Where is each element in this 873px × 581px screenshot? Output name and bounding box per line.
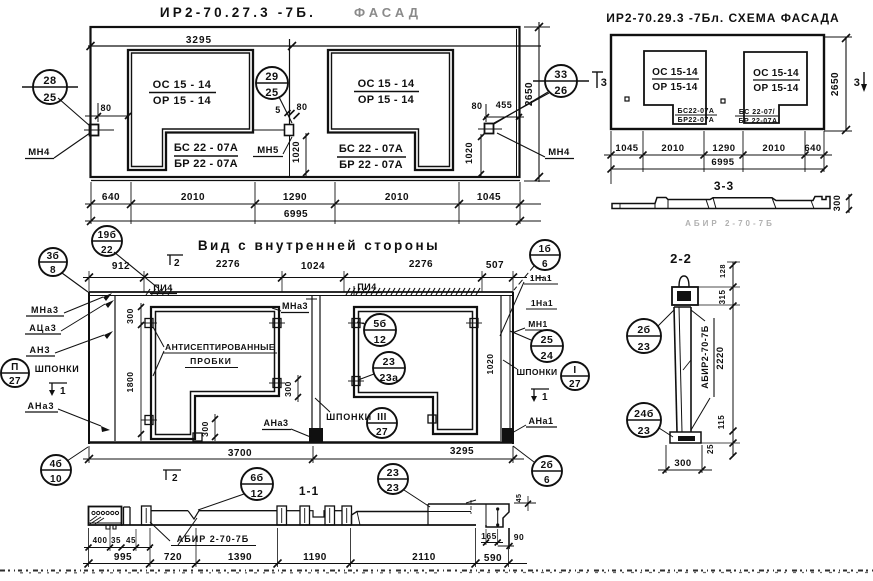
svg-text:400: 400 (93, 536, 108, 545)
svg-text:455: 455 (496, 100, 513, 110)
svg-text:I: I (573, 365, 576, 376)
svg-text:ОР 15-14: ОР 15-14 (753, 83, 798, 94)
svg-text:БС 22-07/: БС 22-07/ (739, 109, 775, 116)
svg-text:300: 300 (283, 381, 293, 397)
svg-text:2110: 2110 (412, 552, 436, 563)
svg-text:АНа3: АНа3 (27, 401, 54, 411)
svg-text:1020: 1020 (485, 354, 495, 375)
svg-text:БР 22-07А: БР 22-07А (738, 118, 777, 125)
svg-text:БС22-07А: БС22-07А (678, 108, 715, 115)
svg-text:2-2: 2-2 (670, 251, 692, 266)
svg-text:3б: 3б (47, 250, 60, 262)
svg-text:1290: 1290 (283, 192, 307, 203)
svg-text:ФАСАД: ФАСАД (354, 5, 422, 20)
svg-text:720: 720 (164, 552, 182, 563)
svg-text:27: 27 (569, 379, 581, 390)
svg-text:2010: 2010 (661, 143, 684, 154)
svg-text:590: 590 (484, 553, 502, 564)
svg-text:315: 315 (718, 290, 727, 305)
svg-text:6995: 6995 (711, 157, 734, 168)
svg-text:1045: 1045 (615, 143, 638, 154)
svg-text:Вид с внутренней стороны: Вид с внутренней стороны (198, 238, 440, 253)
svg-text:25: 25 (265, 87, 278, 99)
svg-text:640: 640 (102, 192, 120, 203)
svg-text:1045: 1045 (477, 192, 501, 203)
svg-text:28: 28 (43, 75, 56, 87)
svg-text:БС 22 - 07А: БС 22 - 07А (339, 143, 403, 155)
svg-text:1На1: 1На1 (530, 273, 552, 283)
svg-text:6б: 6б (250, 472, 263, 484)
svg-text:3: 3 (601, 77, 608, 89)
svg-text:45: 45 (126, 536, 136, 545)
svg-text:115: 115 (717, 415, 726, 429)
svg-text:1290: 1290 (712, 143, 735, 154)
svg-text:5б: 5б (373, 318, 386, 330)
svg-text:640: 640 (804, 143, 821, 154)
svg-text:2: 2 (174, 258, 180, 269)
svg-text:1: 1 (542, 392, 548, 403)
svg-text:ИР2-70.27.3 -7Б.: ИР2-70.27.3 -7Б. (160, 5, 316, 20)
svg-text:1б: 1б (539, 243, 552, 255)
svg-text:300: 300 (125, 308, 135, 324)
svg-text:2220: 2220 (715, 346, 726, 369)
svg-text:1На1: 1На1 (531, 298, 553, 308)
svg-text:ОС 15 - 14: ОС 15 - 14 (358, 78, 415, 90)
svg-text:6: 6 (542, 259, 548, 270)
svg-text:2276: 2276 (409, 259, 433, 270)
svg-text:1-1: 1-1 (299, 484, 319, 498)
svg-text:80: 80 (471, 101, 482, 111)
svg-text:507: 507 (486, 260, 504, 271)
svg-text:24: 24 (541, 350, 554, 362)
svg-text:45: 45 (516, 494, 523, 503)
svg-text:1390: 1390 (228, 552, 252, 563)
svg-text:80: 80 (100, 103, 111, 113)
svg-text:МНа3: МНа3 (282, 301, 308, 311)
svg-text:ОС 15 - 14: ОС 15 - 14 (153, 79, 212, 91)
svg-text:10: 10 (50, 474, 62, 485)
svg-text:6: 6 (544, 475, 550, 486)
svg-text:МН1: МН1 (528, 319, 547, 329)
svg-text:АН3: АН3 (29, 345, 50, 355)
svg-text:80: 80 (296, 102, 307, 112)
svg-text:ОР 15 - 14: ОР 15 - 14 (358, 94, 415, 106)
svg-text:25: 25 (43, 92, 56, 104)
svg-text:АБИР 2-70-7Б: АБИР 2-70-7Б (685, 219, 775, 228)
svg-text:24б: 24б (634, 408, 654, 420)
svg-text:22: 22 (101, 245, 113, 256)
svg-text:2010: 2010 (181, 192, 205, 203)
svg-text:ШПОНКИ: ШПОНКИ (35, 364, 80, 374)
svg-text:23: 23 (387, 482, 400, 494)
svg-text:12: 12 (251, 488, 264, 500)
svg-text:III: III (377, 412, 387, 423)
svg-text:БР 22 - 07А: БР 22 - 07А (174, 158, 238, 170)
svg-text:1024: 1024 (301, 261, 325, 272)
svg-text:300: 300 (832, 195, 842, 212)
svg-text:3-3: 3-3 (714, 179, 734, 193)
svg-text:АБИР2-70-7Б: АБИР2-70-7Б (700, 325, 710, 388)
svg-text:29: 29 (265, 71, 278, 83)
svg-text:АНТИСЕПТИРОВАННЫЕ: АНТИСЕПТИРОВАННЫЕ (165, 342, 275, 352)
svg-text:ШПОНКИ: ШПОНКИ (516, 367, 557, 377)
svg-text:23: 23 (387, 467, 400, 479)
svg-text:25: 25 (706, 444, 715, 454)
svg-text:БР22-07А: БР22-07А (678, 117, 715, 124)
svg-text:ОР 15-14: ОР 15-14 (652, 82, 697, 93)
svg-text:АНа3: АНа3 (263, 418, 288, 428)
svg-text:ОР 15 - 14: ОР 15 - 14 (153, 95, 212, 107)
svg-text:2010: 2010 (385, 192, 409, 203)
svg-text:12: 12 (374, 334, 387, 346)
svg-text:1800: 1800 (125, 372, 135, 393)
svg-text:27: 27 (376, 427, 388, 438)
svg-text:3: 3 (854, 77, 861, 89)
svg-text:ИР2-70.29.3 -7Бл. СХЕМА ФАСАДА: ИР2-70.29.3 -7Бл. СХЕМА ФАСАДА (606, 11, 839, 25)
svg-text:АЦа3: АЦа3 (29, 323, 56, 333)
svg-text:6995: 6995 (284, 209, 308, 220)
svg-text:1: 1 (60, 386, 66, 397)
svg-text:ОС 15-14: ОС 15-14 (652, 67, 698, 78)
svg-text:2б: 2б (541, 459, 554, 471)
svg-text:3295: 3295 (450, 446, 474, 457)
svg-text:33: 33 (554, 69, 567, 81)
svg-text:3295: 3295 (186, 35, 212, 46)
svg-text:5: 5 (275, 105, 281, 115)
svg-text:ШПОНКИ: ШПОНКИ (326, 412, 372, 422)
svg-text:1020: 1020 (291, 141, 301, 163)
svg-text:19б: 19б (98, 229, 117, 241)
svg-text:ПРОБКИ: ПРОБКИ (190, 356, 232, 366)
svg-text:23а: 23а (379, 372, 398, 384)
svg-text:1190: 1190 (303, 552, 327, 563)
svg-text:ОС 15-14: ОС 15-14 (753, 68, 799, 79)
svg-text:128: 128 (718, 264, 727, 278)
svg-text:35: 35 (111, 536, 121, 545)
svg-text:23: 23 (638, 425, 651, 437)
svg-text:912: 912 (112, 261, 130, 272)
svg-text:МН5: МН5 (257, 145, 279, 156)
svg-text:2: 2 (172, 473, 178, 484)
svg-text:23: 23 (638, 341, 651, 353)
svg-text:995: 995 (114, 552, 132, 563)
svg-text:АБИР 2-70-7Б: АБИР 2-70-7Б (177, 534, 249, 544)
svg-text:27: 27 (9, 376, 21, 387)
svg-text:МН4: МН4 (548, 147, 570, 158)
svg-text:3700: 3700 (228, 448, 252, 459)
svg-text:300: 300 (674, 458, 691, 469)
svg-text:БС 22 - 07А: БС 22 - 07А (174, 142, 238, 154)
svg-text:26: 26 (554, 85, 567, 97)
svg-text:2650: 2650 (830, 72, 841, 96)
svg-text:МН4: МН4 (28, 147, 50, 158)
svg-text:2б: 2б (637, 324, 650, 336)
svg-text:23: 23 (383, 356, 396, 368)
svg-text:2276: 2276 (216, 259, 240, 270)
svg-text:4б: 4б (50, 458, 63, 470)
svg-text:2010: 2010 (762, 143, 785, 154)
svg-text:МНа3: МНа3 (31, 305, 59, 315)
svg-text:П: П (11, 362, 19, 373)
svg-text:90: 90 (514, 532, 524, 542)
svg-text:25: 25 (541, 334, 554, 346)
svg-text:АНа1: АНа1 (528, 416, 553, 426)
svg-text:БР 22 - 07А: БР 22 - 07А (339, 159, 403, 171)
svg-text:300: 300 (200, 421, 210, 437)
svg-text:8: 8 (50, 265, 56, 276)
svg-text:1020: 1020 (464, 142, 474, 164)
